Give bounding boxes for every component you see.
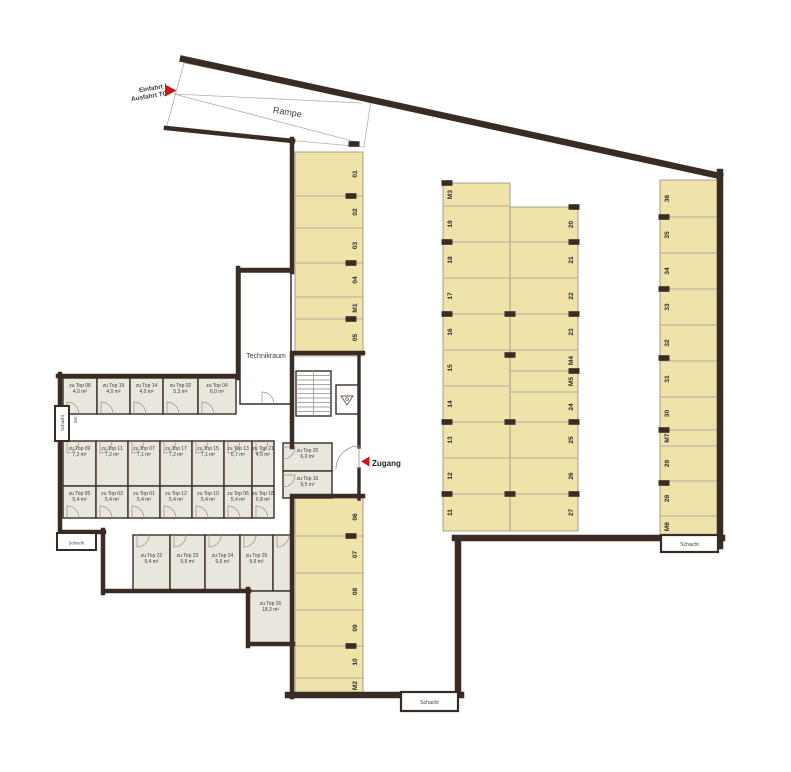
parking-space-label: 18: [447, 256, 454, 264]
parking-space-label: 32: [664, 339, 671, 347]
pillar: [442, 419, 453, 425]
storage-room-area: 18,3 m²: [262, 607, 279, 613]
storage-room-area: 9,6 m²: [249, 559, 264, 565]
storage-room-label: zu Top 11: [101, 446, 122, 452]
storage-room-area: 5,4 m²: [231, 497, 246, 503]
storage-room-label: zu Top 14: [136, 383, 158, 389]
pillar: [346, 260, 357, 266]
storage-room-area: 9,6 m²: [215, 559, 230, 565]
parking-space-label: M6: [664, 522, 671, 531]
storage-room-area: 9,5 m²: [300, 482, 315, 488]
storage-room-label: zu Top 08: [69, 383, 91, 389]
parking-space-label: 35: [664, 231, 671, 239]
storage-room-label: zu Top 16: [297, 476, 319, 482]
storage-room-area: 6,7 m²: [231, 452, 246, 458]
parking-space-label: 17: [447, 292, 454, 300]
storage-room-area: 5,4 m²: [105, 497, 120, 503]
pillar: [659, 427, 670, 433]
storage-room-area: 5,4 m²: [137, 497, 152, 503]
storage-room-area: 4,0 m²: [73, 389, 88, 395]
schacht-label-bottom-center: Schacht: [420, 700, 439, 706]
pillar: [505, 311, 516, 317]
storage-room-label: zu Top 01: [133, 491, 155, 497]
parking-space-label: 13: [447, 436, 454, 444]
pillar: [505, 491, 516, 497]
storage-room-label: zu Top 02: [170, 383, 192, 389]
storage-room-label: zu Top 17: [165, 446, 187, 452]
entry-exit-line2: Ausfahrt TG: [131, 90, 169, 103]
parking-space-label: 33: [664, 303, 671, 311]
storage-room-label: zu Top 25: [246, 553, 268, 559]
storage-room-area: 7,2 m²: [169, 452, 184, 458]
pillar: [442, 491, 453, 497]
parking-space-label: 11: [447, 509, 454, 516]
storage-room-area: 5,4 m²: [169, 497, 184, 503]
garage-floor-plan: zu Top 084,0 m²zu Top 194,0 m²zu Top 144…: [0, 0, 791, 772]
parking-space-label: M7: [664, 433, 671, 442]
parking-space-label: 01: [352, 170, 359, 178]
parking-space-label: 16: [447, 328, 454, 336]
storage-room-area: 5,3 m²: [173, 389, 188, 395]
storage-room-area: 7,1 m²: [137, 452, 152, 458]
schacht-label-west-vertical: Schacht: [60, 414, 65, 431]
entry-exit-label: Einfahrt / Ausfahrt TG: [129, 83, 168, 103]
storage-room-area: 6,8 m²: [256, 497, 271, 503]
storage-room-label: zu Top 09: [69, 446, 91, 452]
storage-room-area: 9,4 m²: [144, 559, 159, 565]
parking-space-label: M3: [447, 190, 454, 199]
ent-label: Ent.: [73, 415, 78, 422]
parking-space-label: 21: [568, 256, 575, 264]
storage-room-label: zu Top 22: [141, 553, 163, 559]
pillar: [346, 533, 357, 539]
pillar: [569, 311, 580, 317]
storage-room-area: 4,0 m²: [139, 389, 154, 395]
pillar: [346, 316, 357, 322]
storage-room-label: zu Top 15: [197, 446, 219, 452]
storage-room-area: 4,0 m²: [106, 389, 121, 395]
pillar: [659, 214, 670, 220]
pillar: [569, 239, 580, 245]
storage-room-area: 7,1 m²: [201, 452, 216, 458]
zugang-door-arc: [336, 446, 359, 469]
zugang-label: Zugang: [372, 459, 401, 468]
storage-room-label: zu Top 05: [69, 491, 91, 497]
storage-room-label: zu Top 03: [101, 491, 123, 497]
parking-space-label: 20: [568, 221, 575, 229]
parking-space-label: 15: [447, 364, 454, 372]
staircase: [296, 371, 331, 416]
pillar: [505, 352, 516, 358]
parking-space-label: 27: [568, 509, 575, 517]
parking-space-label: 23: [568, 328, 575, 336]
parking-space-label: M2: [352, 681, 359, 690]
parking-space-label: 31: [664, 375, 671, 383]
parking-space-label: 36: [664, 195, 671, 203]
parking-space-label: 08: [352, 588, 359, 596]
parking-space-label: 22: [568, 292, 575, 300]
parking-space-label: 06: [352, 513, 359, 521]
storage-room-label: zu Top 26: [260, 601, 282, 607]
parking-space-label: 28: [664, 495, 671, 503]
storage-room-label: zu Top 07: [133, 446, 155, 452]
parking-space-label: 02: [352, 208, 359, 216]
storage-room-label: zu Top 23: [177, 553, 199, 559]
storage-room-area: 5,4 m²: [72, 497, 87, 503]
parking-space-label: 09: [352, 624, 359, 632]
pillar: [569, 368, 580, 374]
parking-space-label: 10: [352, 658, 359, 666]
parking-area-west-upper: [295, 152, 363, 356]
storage-room-label: zu Top 06: [227, 491, 249, 497]
parking-space-label: 24: [568, 403, 575, 411]
parking-space-label: 14: [447, 400, 454, 408]
storage-room-label: zu Top 21: [252, 446, 274, 452]
pillar: [346, 193, 357, 199]
parking-space-label: 29: [664, 460, 671, 468]
pillar: [442, 311, 453, 317]
storage-room-label: zu Top 04: [206, 383, 228, 389]
parking-space-label: 19: [447, 220, 454, 228]
parking-space-label: 30: [664, 410, 671, 418]
storage-room-area: 7,2 m²: [72, 452, 87, 458]
pillar: [659, 480, 670, 486]
pillar: [349, 141, 360, 147]
parking-space-label: 25: [568, 436, 575, 444]
schacht-label-east: Schacht: [680, 542, 699, 548]
floor-plan-page: zu Top 084,0 m²zu Top 194,0 m²zu Top 144…: [0, 0, 791, 772]
entry-arrow-icon: [165, 85, 177, 97]
storage-room-label: zu Top 10: [197, 491, 219, 497]
technikraum-label: Technikraum: [246, 353, 286, 360]
storage-room-area: 6,0 m²: [300, 454, 315, 460]
storage-room-label: zu Top 20: [297, 448, 319, 454]
storage-room: [249, 591, 292, 643]
storage-room-label: zu Top 12: [165, 491, 187, 497]
pillar: [442, 180, 453, 186]
pillar: [659, 355, 670, 361]
storage-room-label: zu Top 13: [227, 446, 249, 452]
pillar: [569, 491, 580, 497]
parking-space-label: M5: [568, 377, 575, 386]
parking-space-label: 34: [664, 267, 671, 275]
parking-space-label: 04: [352, 276, 359, 284]
zugang-arrow-icon: [361, 457, 370, 467]
schacht-label-west-bottom: Schacht: [69, 541, 86, 546]
parking-space-label: M4: [568, 356, 575, 365]
pillar: [659, 286, 670, 292]
storage-room-area: 7,2 m²: [105, 452, 120, 458]
wc-room-outline: [336, 385, 359, 414]
parking-space-label: M1: [352, 303, 359, 312]
pillar: [346, 643, 357, 649]
parking-space-label: 07: [352, 551, 359, 559]
walls: [58, 59, 722, 697]
storage-room-area: 9,6 m²: [180, 559, 195, 565]
storage-room: [273, 535, 292, 591]
parking-space-label: 12: [447, 472, 454, 480]
parking-space-label: 03: [352, 242, 359, 250]
wc-room: [336, 385, 359, 414]
pillar: [569, 204, 580, 210]
storage-room-area: 4,9 m²: [256, 452, 271, 458]
pillar: [569, 419, 580, 425]
parking-space-label: 26: [568, 472, 575, 480]
storage-room-area: 6,0 m²: [210, 389, 225, 395]
parking-space-label: 05: [352, 334, 359, 342]
storage-room-label: zu Top 24: [212, 553, 234, 559]
technikraum-room: [240, 272, 291, 404]
storage-room-area: 5,4 m²: [201, 497, 216, 503]
storage-room-label: zu Top 19: [103, 383, 125, 389]
pillar: [442, 239, 453, 245]
technikraum: [240, 272, 291, 404]
storage-room-label: zu Top 18: [252, 491, 274, 497]
pillar: [505, 419, 516, 425]
